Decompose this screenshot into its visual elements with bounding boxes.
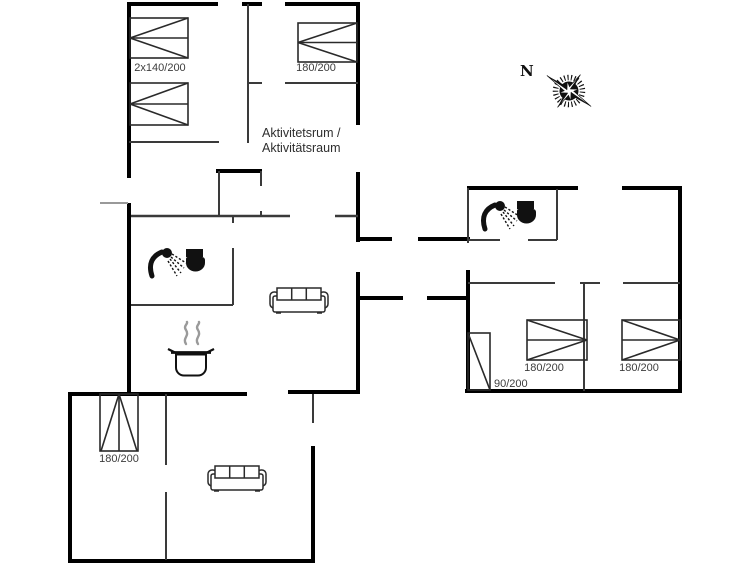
sofa-icon [270,288,328,313]
toilet-icon [517,201,536,224]
room-label-activity-line1: Aktivitetsrum / [262,126,341,140]
bed-icon [298,23,357,62]
bed-icon [468,333,490,390]
bed-icon [622,320,680,360]
compass-north-label: N [520,62,534,80]
cooking-pot-icon [168,322,214,376]
compass-rose-icon [535,59,602,123]
bed-icon [130,18,188,58]
bed-label: 180/200 [614,362,664,374]
bed-icon [130,83,188,125]
bed-label: 2x140/200 [130,62,190,74]
room-label-activity-line2: Aktivitätsraum [262,141,341,155]
bed-icon [100,394,138,451]
shower-icon [483,201,519,229]
sofa-icon [208,466,266,491]
floor-plan: 2x140/200 180/200 180/200 180/200 180/20… [0,0,755,566]
bed-icon [527,320,587,360]
bed-icons [100,18,680,451]
bed-label: 90/200 [494,378,528,390]
floor-plan-drawing [0,0,755,566]
bed-label: 180/200 [94,453,144,465]
bed-label: 180/200 [519,362,569,374]
sofa-icons [208,288,328,491]
shower-icon [150,248,186,276]
bed-label: 180/200 [291,62,341,74]
toilet-icon [186,249,205,272]
steam-icon [185,322,199,344]
